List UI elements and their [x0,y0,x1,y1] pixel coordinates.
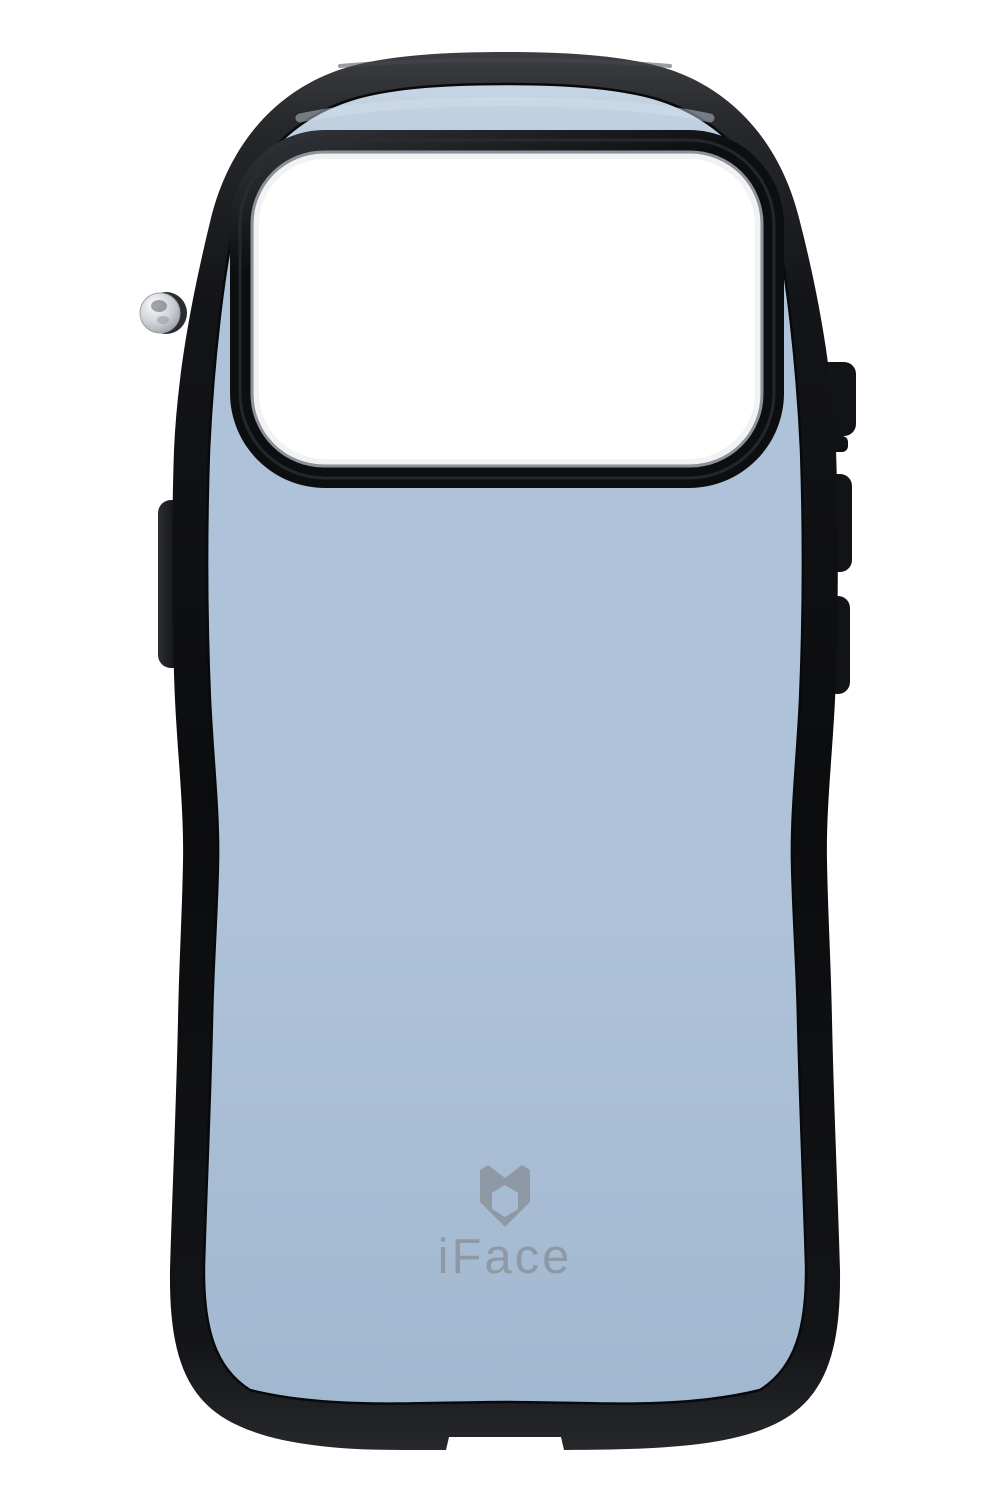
shutter-knob-cap [140,293,180,333]
shutter-knob-shade [157,316,169,324]
shutter-knob [140,292,187,334]
shutter-knob-reflection [151,300,167,312]
brand-logo-text: iFace [438,1230,573,1284]
camera-window [230,130,784,488]
product-photo: iFace [0,0,1000,1500]
camera-window-opening [252,152,762,466]
phone-case-illustration: iFace [0,0,1000,1500]
